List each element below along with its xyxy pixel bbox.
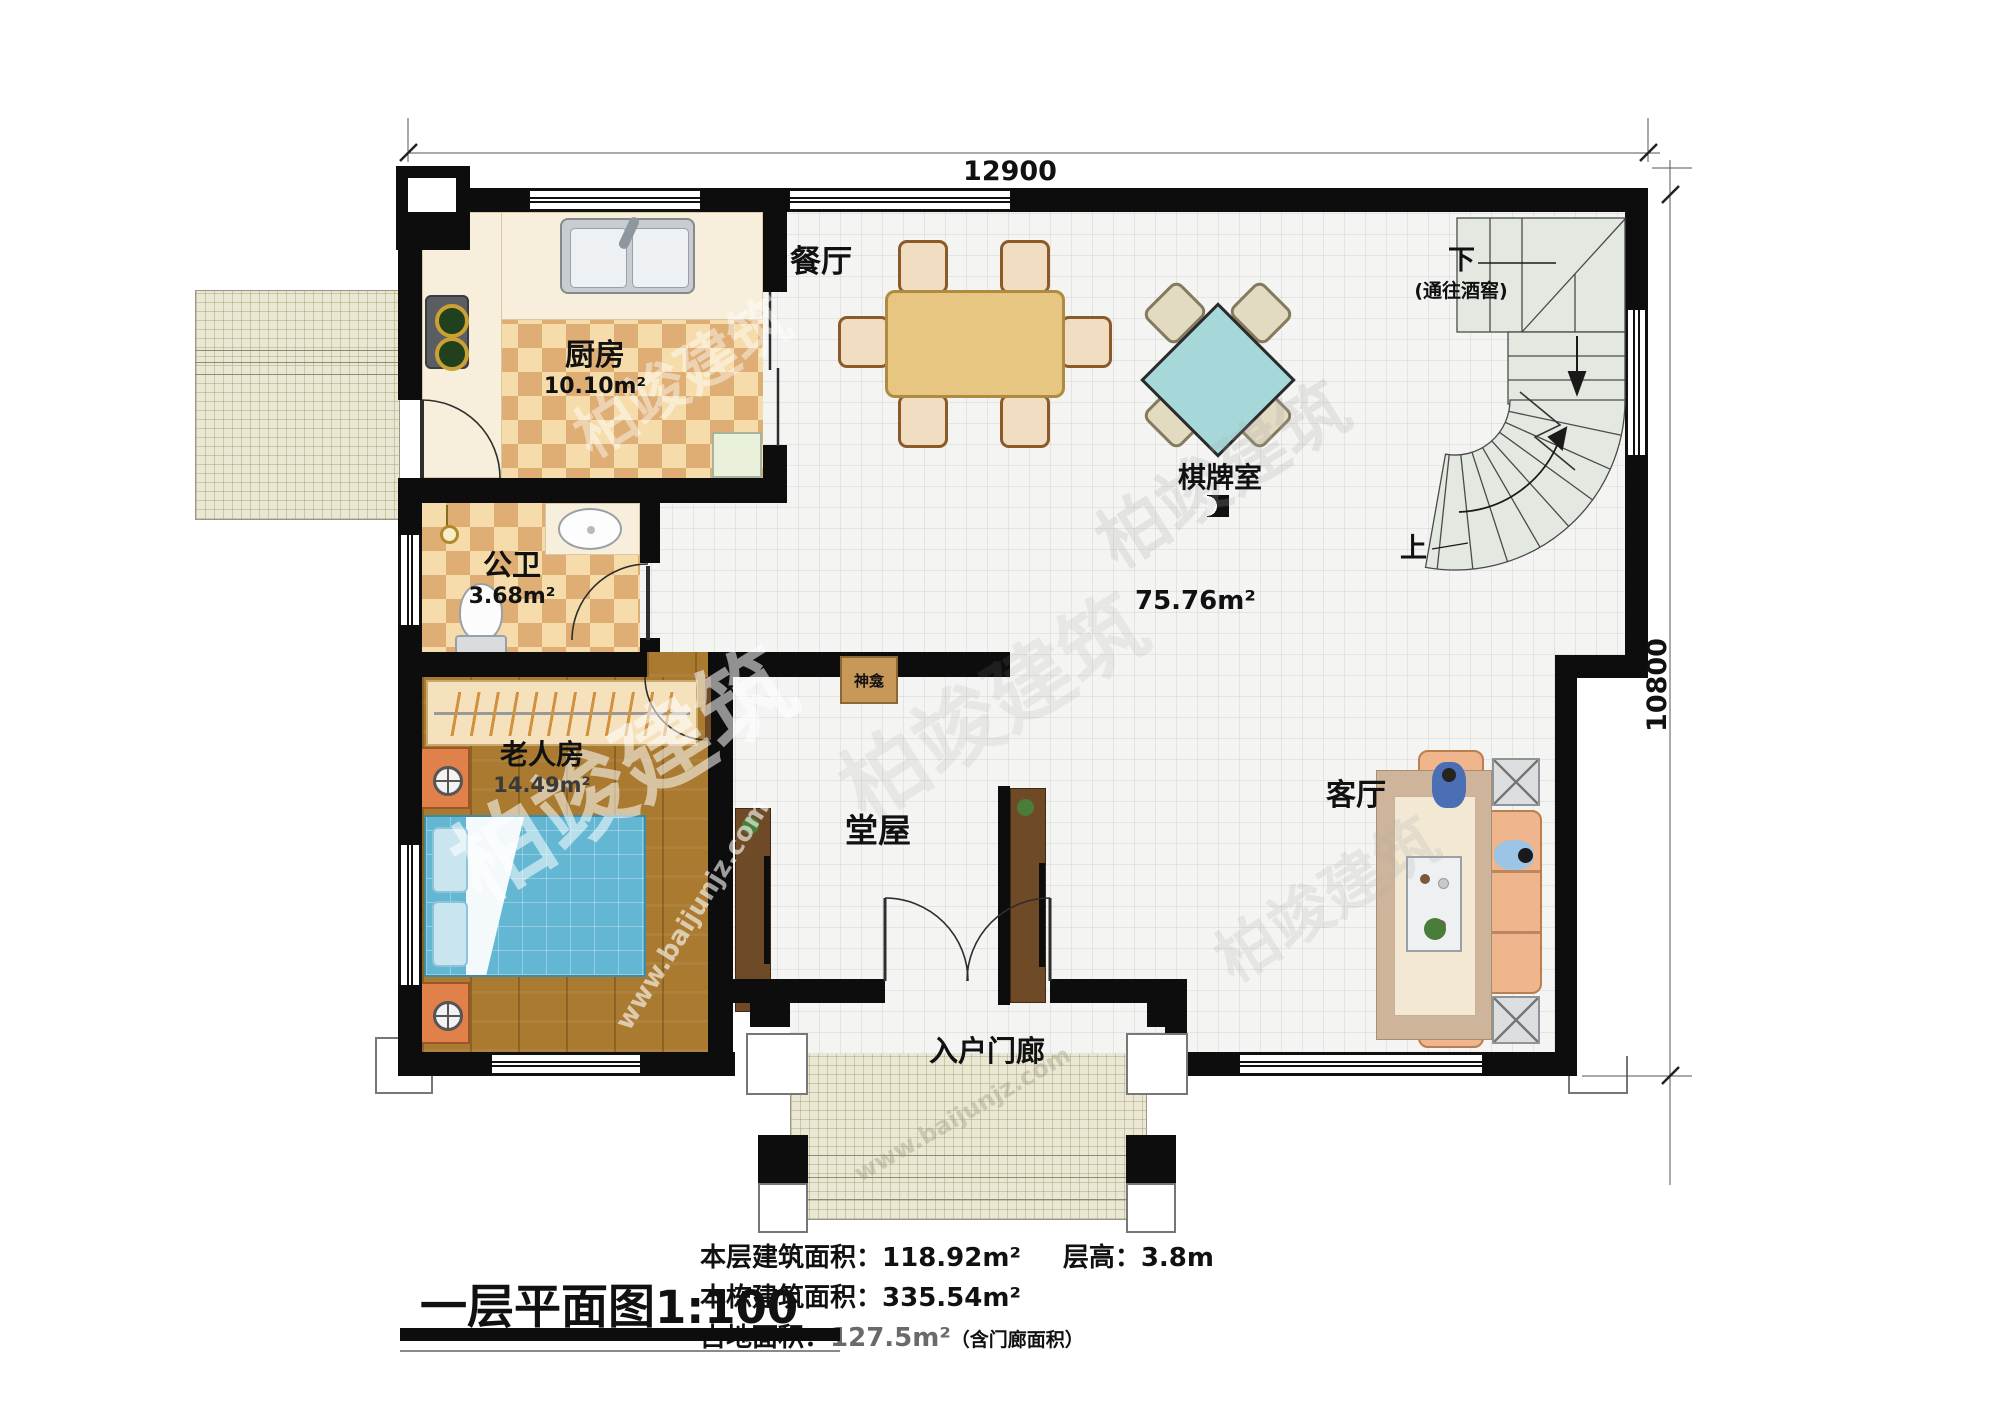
room-name: 公卫 bbox=[448, 542, 576, 584]
cup-icon bbox=[1420, 874, 1430, 884]
patio-step-line bbox=[195, 350, 400, 351]
wall-segment bbox=[398, 503, 422, 535]
tv-icon bbox=[1039, 863, 1045, 967]
burner-icon bbox=[435, 304, 469, 338]
porch-pier bbox=[1126, 1033, 1188, 1095]
total-area-value: 335.54m² bbox=[882, 1283, 1021, 1313]
title-scale: 1:100 bbox=[655, 1281, 798, 1334]
tv-cabinet bbox=[1010, 788, 1046, 1003]
room-label-living: 客厅 bbox=[1326, 770, 1386, 814]
wall-segment bbox=[640, 503, 660, 563]
floorplan-canvas: 神龛 bbox=[0, 0, 2000, 1413]
room-area: 14.49m² bbox=[462, 773, 622, 797]
dining-chair bbox=[1060, 316, 1112, 368]
porch-pier bbox=[758, 1183, 808, 1233]
room-label-hall: 堂屋 bbox=[845, 804, 911, 852]
patio-terrace bbox=[195, 290, 400, 520]
title-text: 一层平面图 bbox=[420, 1280, 655, 1335]
room-area: 10.10m² bbox=[528, 374, 662, 399]
bed bbox=[424, 815, 646, 977]
wall-segment bbox=[640, 1052, 735, 1076]
pillow bbox=[432, 827, 468, 893]
dim-right-label: 10800 bbox=[1613, 635, 1703, 735]
title-underline-thin bbox=[400, 1350, 840, 1352]
column-section-icon bbox=[1207, 495, 1229, 517]
plant-icon bbox=[742, 817, 759, 834]
shrine-cabinet: 神龛 bbox=[840, 656, 898, 704]
wall-segment bbox=[1010, 188, 1648, 212]
stair-down-note: (通往酒窖) bbox=[1388, 276, 1534, 303]
footprint-value: 127.5m² bbox=[830, 1323, 951, 1353]
porch-step-line bbox=[808, 1199, 1128, 1200]
storey-height-value: 3.8m bbox=[1141, 1243, 1214, 1273]
storey-height-label: 层高： bbox=[1063, 1243, 1141, 1273]
dining-chair bbox=[1000, 394, 1050, 448]
kitchen-sink bbox=[560, 218, 695, 294]
flower-icon bbox=[1424, 918, 1446, 940]
side-table bbox=[1492, 758, 1540, 806]
stair-up-label: 上 bbox=[1400, 526, 1427, 565]
room-label-porch: 入户门廊 bbox=[912, 1028, 1062, 1070]
dining-chair bbox=[898, 240, 948, 294]
room-label-dining: 餐厅 bbox=[790, 236, 852, 281]
room-label-elder: 老人房 14.49m² bbox=[462, 733, 622, 797]
wall-segment bbox=[398, 1052, 492, 1076]
bedroom-door-threshold bbox=[647, 652, 708, 677]
table-lamp-icon bbox=[433, 1001, 463, 1031]
person-figure bbox=[1494, 840, 1534, 870]
porch-pier bbox=[1126, 1183, 1176, 1233]
open-area-label: 75.76m² bbox=[1135, 586, 1256, 616]
plant-icon bbox=[1017, 799, 1034, 816]
table-lamp-icon bbox=[433, 766, 463, 796]
dining-table bbox=[885, 290, 1065, 398]
wall-segment bbox=[398, 985, 422, 1052]
chimney-flue bbox=[408, 178, 456, 212]
cup-icon bbox=[1438, 878, 1449, 889]
tv-icon bbox=[764, 856, 770, 964]
wall-segment bbox=[708, 652, 733, 1076]
porch-step-line bbox=[808, 1177, 1128, 1178]
person-head bbox=[1518, 848, 1533, 863]
wall-segment bbox=[750, 979, 790, 1027]
sofa-long bbox=[1484, 810, 1542, 994]
wall-segment bbox=[398, 188, 422, 400]
wall-segment bbox=[1625, 188, 1648, 310]
room-name: 老人房 bbox=[462, 733, 622, 773]
wall-segment bbox=[1555, 678, 1577, 1076]
wall-segment bbox=[398, 478, 787, 503]
room-label-bath: 公卫 3.68m² bbox=[448, 542, 576, 609]
title-underline-thick bbox=[400, 1328, 840, 1341]
coffee-table bbox=[1406, 856, 1462, 952]
floor-area-value: 118.92m² bbox=[882, 1243, 1021, 1273]
person-figure bbox=[1432, 762, 1466, 808]
wall-segment bbox=[640, 638, 660, 652]
person-head bbox=[1442, 768, 1456, 782]
drain-dot bbox=[587, 526, 595, 534]
pillow bbox=[432, 901, 468, 967]
wall-segment bbox=[700, 188, 790, 212]
patio-step-line bbox=[195, 362, 400, 363]
side-table bbox=[1492, 996, 1540, 1044]
room-area: 3.68m² bbox=[448, 584, 576, 609]
gas-stove bbox=[425, 295, 469, 369]
room-name: 厨房 bbox=[528, 330, 662, 374]
drawing-title: 一层平面图1:100 bbox=[420, 1268, 798, 1337]
window bbox=[530, 188, 700, 212]
footprint-note: （含门廊面积） bbox=[951, 1329, 1084, 1351]
porch-step-line bbox=[808, 1155, 1128, 1156]
sink-basin bbox=[632, 228, 689, 288]
wardrobe-hangers bbox=[442, 692, 682, 736]
dining-chair bbox=[898, 394, 948, 448]
bed-sheet-fold bbox=[466, 817, 524, 975]
burner-icon bbox=[435, 337, 469, 371]
dining-chair bbox=[838, 316, 890, 368]
patio-step-line bbox=[195, 374, 400, 375]
porch-column bbox=[758, 1135, 808, 1183]
sink-basin bbox=[570, 228, 627, 288]
window bbox=[398, 535, 422, 625]
dining-chair bbox=[1000, 240, 1050, 294]
nightstand bbox=[420, 982, 470, 1044]
wall-segment bbox=[398, 652, 647, 677]
porch-column bbox=[1126, 1135, 1176, 1183]
wall-segment bbox=[998, 786, 1010, 1005]
window bbox=[492, 1052, 640, 1076]
pendant-lamp-icon bbox=[446, 505, 448, 527]
room-label-chess: 棋牌室 bbox=[1158, 456, 1282, 496]
shrine-label: 神龛 bbox=[854, 672, 884, 690]
room-label-kitchen: 厨房 10.10m² bbox=[528, 330, 662, 399]
wall-segment bbox=[763, 212, 787, 292]
window bbox=[398, 845, 422, 985]
wall-segment bbox=[763, 445, 787, 503]
dim-top-label: 12900 bbox=[940, 156, 1080, 187]
window bbox=[790, 188, 1010, 212]
fridge bbox=[712, 432, 762, 478]
window bbox=[1240, 1052, 1482, 1076]
stair-down-label: 下 bbox=[1448, 238, 1475, 277]
porch-pier bbox=[746, 1033, 808, 1095]
window bbox=[1625, 310, 1648, 455]
